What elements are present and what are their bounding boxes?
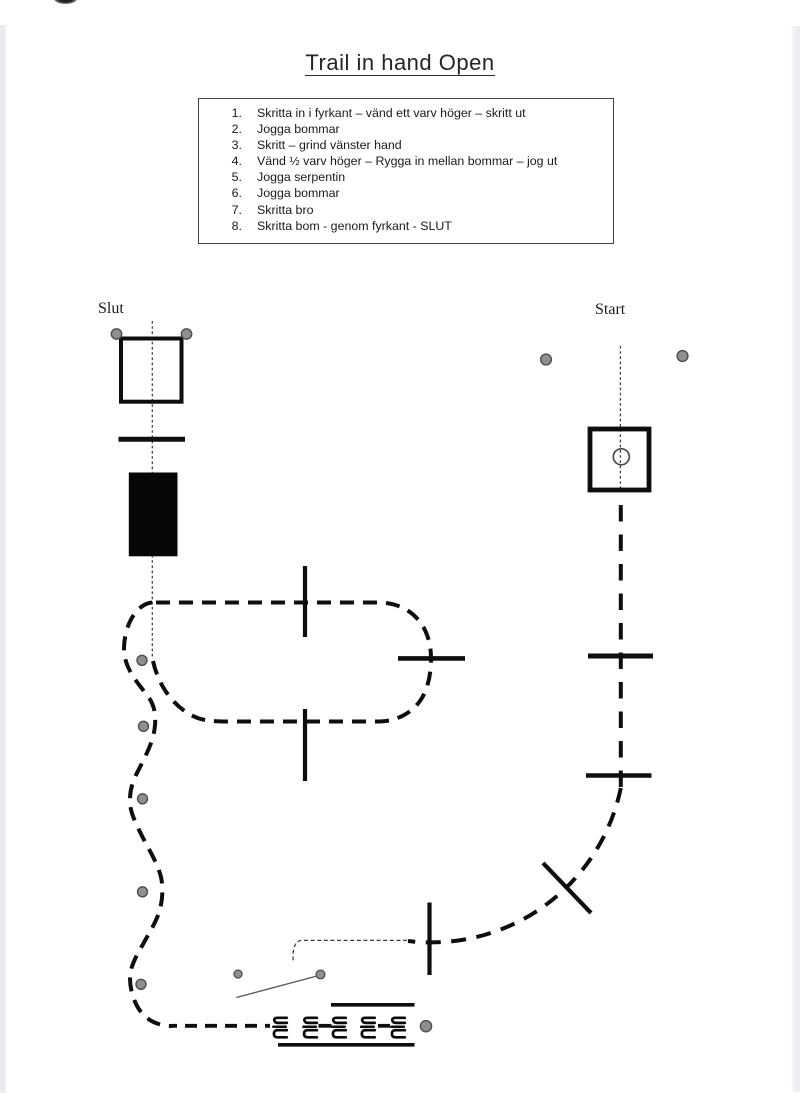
svg-text:Start: Start	[595, 301, 626, 318]
svg-text:Slut: Slut	[98, 300, 124, 317]
